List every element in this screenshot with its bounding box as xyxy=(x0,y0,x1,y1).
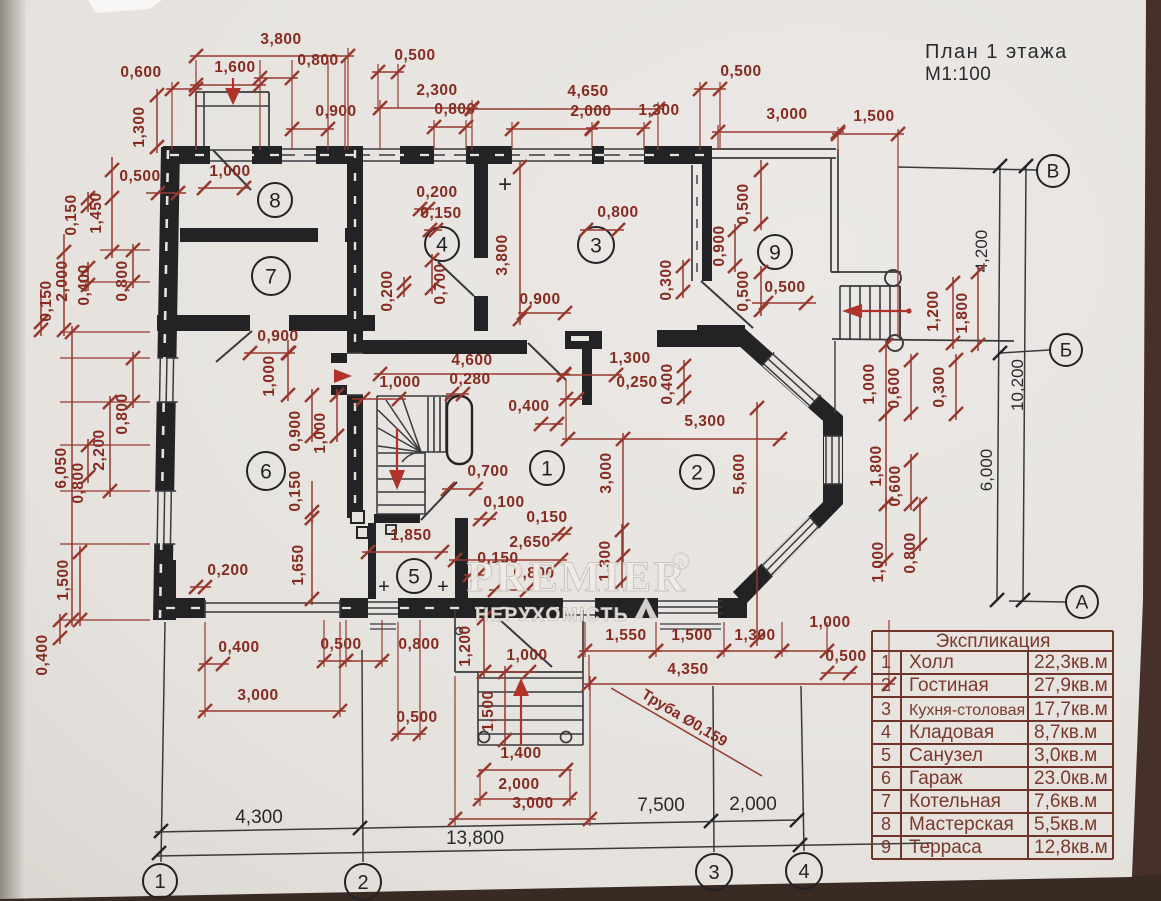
svg-text:1,300: 1,300 xyxy=(734,627,775,644)
svg-text:1,400: 1,400 xyxy=(500,745,541,762)
svg-text:Терраса: Терраса xyxy=(909,837,982,858)
svg-text:М1:100: М1:100 xyxy=(925,64,991,85)
svg-text:12,8кв.м: 12,8кв.м xyxy=(1034,837,1108,858)
svg-text:1,800: 1,800 xyxy=(868,445,885,486)
svg-text:6,000: 6,000 xyxy=(977,449,996,492)
svg-text:0,800: 0,800 xyxy=(902,532,919,573)
svg-text:6: 6 xyxy=(881,768,891,788)
svg-text:0,500: 0,500 xyxy=(394,47,435,64)
svg-text:27,9кв.м: 27,9кв.м xyxy=(1034,675,1108,696)
svg-text:4: 4 xyxy=(798,861,809,883)
svg-text:7: 7 xyxy=(265,265,277,288)
svg-text:0,200: 0,200 xyxy=(207,562,248,579)
svg-text:2,000: 2,000 xyxy=(570,103,611,120)
svg-text:0,500: 0,500 xyxy=(320,636,361,653)
svg-text:2,000: 2,000 xyxy=(498,776,539,793)
svg-text:5,5кв.м: 5,5кв.м xyxy=(1034,814,1097,835)
svg-text:4: 4 xyxy=(881,722,891,742)
svg-text:+: + xyxy=(437,576,449,598)
svg-text:3: 3 xyxy=(881,699,891,719)
svg-text:0,900: 0,900 xyxy=(315,103,356,120)
svg-text:3,800: 3,800 xyxy=(260,31,301,48)
svg-text:17,7кв.м: 17,7кв.м xyxy=(1034,699,1108,720)
svg-text:2,300: 2,300 xyxy=(416,82,457,99)
svg-text:0,600: 0,600 xyxy=(120,64,161,81)
svg-text:1,300: 1,300 xyxy=(131,106,148,147)
svg-text:1,650: 1,650 xyxy=(290,544,307,585)
svg-text:0,800: 0,800 xyxy=(398,636,439,653)
svg-text:5,300: 5,300 xyxy=(684,413,725,430)
svg-text:1,300: 1,300 xyxy=(638,102,679,119)
svg-text:1,000: 1,000 xyxy=(261,355,278,396)
svg-text:+: + xyxy=(378,576,390,598)
svg-text:0,500: 0,500 xyxy=(720,63,761,80)
svg-text:8: 8 xyxy=(269,189,281,212)
svg-text:Холл: Холл xyxy=(909,652,954,673)
svg-text:0,150: 0,150 xyxy=(287,470,304,511)
svg-text:7,500: 7,500 xyxy=(637,795,685,816)
svg-text:0,150: 0,150 xyxy=(526,509,567,526)
svg-text:1,500: 1,500 xyxy=(55,559,72,600)
svg-text:1,200: 1,200 xyxy=(457,625,474,666)
svg-text:3,000: 3,000 xyxy=(512,795,553,812)
svg-text:0,500: 0,500 xyxy=(825,648,866,665)
svg-text:PREMIER: PREMIER xyxy=(467,554,688,601)
svg-text:5: 5 xyxy=(408,565,420,588)
svg-text:1,000: 1,000 xyxy=(870,541,887,582)
svg-text:1,500: 1,500 xyxy=(480,690,497,731)
svg-text:1,000: 1,000 xyxy=(861,363,878,404)
svg-text:0,500: 0,500 xyxy=(735,183,752,224)
svg-text:В: В xyxy=(1047,162,1060,183)
svg-text:0,500: 0,500 xyxy=(764,279,805,296)
svg-text:9: 9 xyxy=(881,837,891,857)
svg-text:0,400: 0,400 xyxy=(76,264,93,305)
svg-text:0,800: 0,800 xyxy=(597,204,638,221)
svg-text:3,000: 3,000 xyxy=(237,687,278,704)
svg-text:0,500: 0,500 xyxy=(119,168,160,185)
svg-text:План 1 этажа: План 1 этажа xyxy=(925,41,1068,63)
svg-text:0,500: 0,500 xyxy=(735,270,752,311)
svg-text:3,0кв.м: 3,0кв.м xyxy=(1034,745,1097,766)
svg-text:4,650: 4,650 xyxy=(567,83,608,100)
svg-text:2,000: 2,000 xyxy=(54,260,71,301)
svg-text:0,150: 0,150 xyxy=(38,280,55,321)
svg-text:0,300: 0,300 xyxy=(931,366,948,407)
svg-text:0,200: 0,200 xyxy=(416,184,457,201)
svg-text:13,800: 13,800 xyxy=(446,828,504,849)
svg-text:4,200: 4,200 xyxy=(972,230,991,273)
svg-text:2,000: 2,000 xyxy=(729,794,777,815)
svg-text:0,800: 0,800 xyxy=(297,52,338,69)
svg-text:Кухня-столовая: Кухня-столовая xyxy=(909,702,1025,719)
svg-text:0,900: 0,900 xyxy=(711,225,728,266)
svg-text:3,000: 3,000 xyxy=(598,452,615,493)
svg-text:5,600: 5,600 xyxy=(731,453,748,494)
svg-text:2,650: 2,650 xyxy=(509,534,550,551)
svg-text:+: + xyxy=(498,171,512,198)
svg-text:0,800: 0,800 xyxy=(114,260,131,301)
svg-text:Санузел: Санузел xyxy=(909,745,983,766)
svg-text:Кладовая: Кладовая xyxy=(909,722,994,743)
svg-text:1,000: 1,000 xyxy=(506,647,547,664)
svg-text:НЕРУХОМІСТЬ: НЕРУХОМІСТЬ xyxy=(475,605,629,626)
svg-text:А: А xyxy=(1076,593,1089,614)
svg-text:0,900: 0,900 xyxy=(287,410,304,451)
svg-text:6: 6 xyxy=(260,460,272,483)
svg-text:2: 2 xyxy=(691,461,703,484)
svg-text:6,050: 6,050 xyxy=(53,447,70,488)
svg-text:4,600: 4,600 xyxy=(451,352,492,369)
svg-text:0,400: 0,400 xyxy=(659,363,676,404)
svg-text:1,200: 1,200 xyxy=(925,290,942,331)
svg-text:0,900: 0,900 xyxy=(519,291,560,308)
svg-text:1,300: 1,300 xyxy=(609,350,650,367)
svg-text:Мастерская: Мастерская xyxy=(909,814,1014,835)
svg-text:3: 3 xyxy=(708,862,719,884)
svg-text:7,6кв.м: 7,6кв.м xyxy=(1034,791,1097,812)
svg-text:0,800: 0,800 xyxy=(114,393,131,434)
svg-text:2: 2 xyxy=(357,872,368,894)
svg-text:1,000: 1,000 xyxy=(209,163,250,180)
svg-text:0,100: 0,100 xyxy=(483,494,524,511)
svg-text:0,200: 0,200 xyxy=(379,270,396,311)
svg-text:0,150: 0,150 xyxy=(63,194,80,235)
svg-text:1,450: 1,450 xyxy=(88,192,105,233)
svg-text:0,250: 0,250 xyxy=(616,374,657,391)
svg-text:1,000: 1,000 xyxy=(379,374,420,391)
svg-text:0,400: 0,400 xyxy=(218,639,259,656)
svg-text:1: 1 xyxy=(541,457,553,480)
svg-text:8: 8 xyxy=(881,814,891,834)
svg-text:0,700: 0,700 xyxy=(432,263,449,304)
svg-text:1,000: 1,000 xyxy=(312,412,329,453)
svg-text:Гараж: Гараж xyxy=(909,768,963,789)
svg-text:0,150: 0,150 xyxy=(420,205,461,222)
svg-text:0,700: 0,700 xyxy=(467,463,508,480)
svg-text:0,400: 0,400 xyxy=(508,398,549,415)
svg-text:22,3кв.м: 22,3кв.м xyxy=(1034,652,1108,673)
svg-text:1: 1 xyxy=(881,652,891,672)
svg-text:3,800: 3,800 xyxy=(494,234,511,275)
svg-text:0,300: 0,300 xyxy=(658,259,675,300)
svg-text:Гостиная: Гостиная xyxy=(909,675,989,696)
svg-text:0,500: 0,500 xyxy=(396,709,437,726)
svg-text:Котельная: Котельная xyxy=(909,791,1001,812)
svg-text:7: 7 xyxy=(881,791,891,811)
svg-text:3,000: 3,000 xyxy=(766,106,807,123)
svg-text:10,200: 10,200 xyxy=(1008,359,1027,411)
svg-text:4,350: 4,350 xyxy=(667,661,708,678)
svg-text:0,400: 0,400 xyxy=(34,634,51,675)
svg-text:Экспликация: Экспликация xyxy=(936,631,1051,652)
svg-text:0,280: 0,280 xyxy=(449,371,490,388)
svg-text:R: R xyxy=(677,557,685,569)
svg-text:2,200: 2,200 xyxy=(91,429,108,470)
svg-text:9: 9 xyxy=(769,241,781,264)
svg-text:1,500: 1,500 xyxy=(671,627,712,644)
svg-text:1,550: 1,550 xyxy=(605,627,646,644)
svg-text:3: 3 xyxy=(590,234,602,257)
svg-text:1,800: 1,800 xyxy=(954,292,971,333)
svg-text:2: 2 xyxy=(881,675,891,695)
svg-text:5: 5 xyxy=(881,745,891,765)
svg-text:23.0кв.м: 23.0кв.м xyxy=(1034,768,1108,789)
svg-text:1,500: 1,500 xyxy=(853,108,894,125)
svg-text:8,7кв.м: 8,7кв.м xyxy=(1034,722,1097,743)
svg-text:1: 1 xyxy=(154,871,165,893)
svg-text:4,300: 4,300 xyxy=(235,807,283,828)
svg-text:1,000: 1,000 xyxy=(809,614,850,631)
svg-text:0,600: 0,600 xyxy=(886,367,903,408)
svg-text:1,600: 1,600 xyxy=(214,59,255,76)
svg-text:1,850: 1,850 xyxy=(390,527,431,544)
svg-text:0,900: 0,900 xyxy=(257,328,298,345)
svg-text:Б: Б xyxy=(1060,341,1072,362)
